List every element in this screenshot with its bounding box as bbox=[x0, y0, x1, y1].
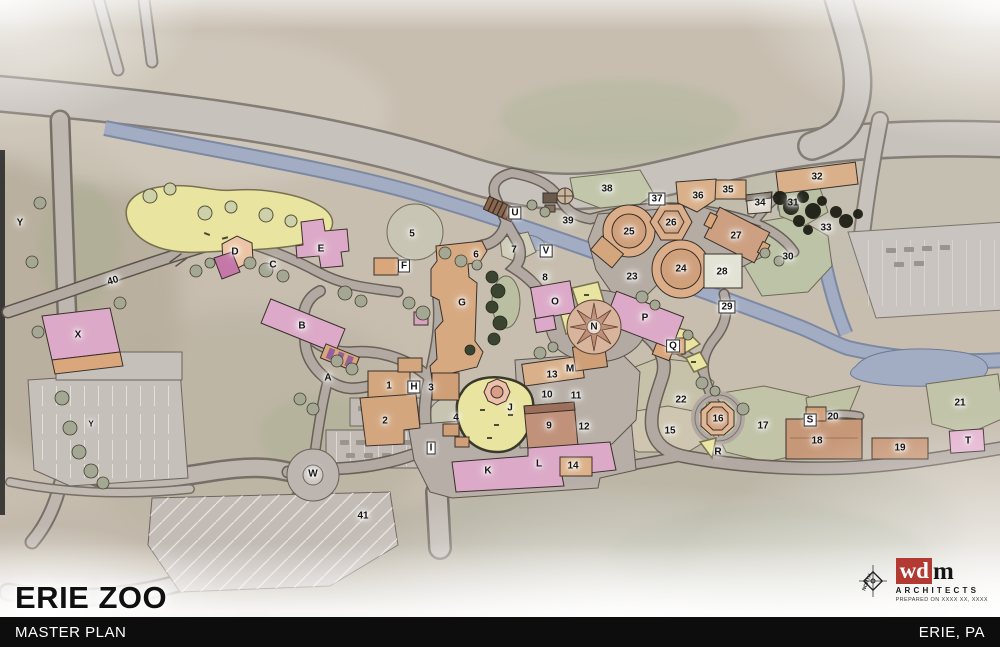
map-marker-7: 7 bbox=[511, 245, 517, 256]
map-marker-35: 35 bbox=[722, 185, 733, 196]
map-marker-20: 20 bbox=[827, 412, 838, 423]
map-marker-33: 33 bbox=[820, 223, 831, 234]
map-marker-15: 15 bbox=[664, 426, 675, 437]
location-label: ERIE, PA bbox=[919, 624, 985, 641]
map-marker-26: 26 bbox=[665, 218, 676, 229]
logo-wd-mark: wd bbox=[896, 558, 932, 584]
master-plan-page: ABCDEFGHIJKLMNOPQRSTUVWXYY12345678910111… bbox=[0, 0, 1000, 647]
plan-type-label: MASTER PLAN bbox=[15, 624, 126, 641]
map-marker-Y: Y bbox=[17, 218, 24, 229]
north-compass-icon: NORTH bbox=[858, 564, 888, 598]
title-bar: MASTER PLAN ERIE, PA bbox=[0, 617, 1000, 647]
map-marker-24: 24 bbox=[675, 264, 686, 275]
map-marker-P: P bbox=[642, 313, 649, 324]
map-marker-29: 29 bbox=[718, 301, 735, 314]
map-marker-3: 3 bbox=[428, 383, 434, 394]
map-marker-11: 11 bbox=[571, 391, 582, 402]
map-marker-31: 31 bbox=[787, 198, 798, 209]
map-marker-5: 5 bbox=[409, 229, 415, 240]
map-marker-Y2: Y bbox=[88, 420, 93, 429]
map-marker-N: N bbox=[590, 322, 597, 333]
wdm-brand: wdm ARCHITECTS PREPARED ON XXXX XX, XXXX bbox=[896, 558, 988, 603]
map-marker-2: 2 bbox=[382, 416, 388, 427]
map-marker-O: O bbox=[551, 297, 559, 308]
map-marker-39: 39 bbox=[562, 216, 573, 227]
map-marker-M: M bbox=[566, 364, 574, 375]
map-marker-E: E bbox=[318, 244, 325, 255]
marker-layer: ABCDEFGHIJKLMNOPQRSTUVWXYY12345678910111… bbox=[0, 0, 1000, 617]
map-marker-H: H bbox=[407, 381, 420, 394]
map-marker-13: 13 bbox=[546, 370, 557, 381]
map-marker-A: A bbox=[324, 373, 331, 384]
map-marker-K: K bbox=[484, 466, 491, 477]
map-marker-21: 21 bbox=[954, 398, 965, 409]
map-marker-V: V bbox=[540, 245, 553, 258]
map-marker-1: 1 bbox=[386, 381, 392, 392]
map-marker-14: 14 bbox=[567, 461, 578, 472]
map-marker-12: 12 bbox=[578, 422, 589, 433]
map-marker-9: 9 bbox=[546, 421, 552, 432]
map-marker-R: R bbox=[714, 447, 721, 458]
map-marker-S: S bbox=[804, 414, 817, 427]
map-marker-18: 18 bbox=[811, 436, 822, 447]
map-marker-23: 23 bbox=[626, 272, 637, 283]
map-marker-W: W bbox=[308, 469, 317, 480]
map-marker-27: 27 bbox=[730, 231, 741, 242]
logo-m-mark: m bbox=[932, 559, 954, 584]
map-marker-34: 34 bbox=[754, 198, 765, 209]
map-marker-D: D bbox=[231, 247, 238, 258]
map-marker-4: 4 bbox=[453, 413, 459, 424]
site-plan-map: ABCDEFGHIJKLMNOPQRSTUVWXYY12345678910111… bbox=[0, 0, 1000, 617]
map-marker-Q: Q bbox=[666, 340, 680, 353]
map-marker-28: 28 bbox=[716, 267, 727, 278]
map-marker-J: J bbox=[507, 403, 513, 414]
map-marker-8: 8 bbox=[542, 273, 548, 284]
map-marker-36: 36 bbox=[692, 191, 703, 202]
map-marker-37: 37 bbox=[648, 193, 665, 206]
architect-logo: NORTH wdm ARCHITECTS PREPARED ON XXXX XX… bbox=[858, 558, 988, 603]
map-marker-F: F bbox=[398, 260, 410, 273]
map-marker-L: L bbox=[536, 459, 542, 470]
prepared-note: PREPARED ON XXXX XX, XXXX bbox=[896, 597, 988, 603]
map-marker-6: 6 bbox=[473, 250, 479, 261]
firm-name: ARCHITECTS bbox=[896, 586, 980, 595]
map-marker-G: G bbox=[458, 298, 466, 309]
map-marker-38: 38 bbox=[601, 184, 612, 195]
map-marker-U: U bbox=[508, 207, 521, 220]
plan-title: ERIE ZOO bbox=[15, 580, 167, 616]
map-marker-41: 41 bbox=[357, 511, 368, 522]
map-marker-X: X bbox=[75, 330, 82, 341]
map-marker-B: B bbox=[298, 321, 305, 332]
map-marker-22: 22 bbox=[675, 395, 686, 406]
map-marker-30: 30 bbox=[782, 252, 793, 263]
map-marker-I: I bbox=[427, 442, 436, 455]
map-marker-10: 10 bbox=[541, 390, 552, 401]
map-marker-32: 32 bbox=[811, 172, 822, 183]
map-marker-19: 19 bbox=[894, 443, 905, 454]
map-marker-25: 25 bbox=[623, 227, 634, 238]
map-marker-T: T bbox=[965, 436, 971, 447]
map-marker-C: C bbox=[269, 260, 276, 271]
map-marker-16: 16 bbox=[712, 414, 723, 425]
map-marker-17: 17 bbox=[757, 421, 768, 432]
map-marker-40: 40 bbox=[106, 274, 120, 288]
